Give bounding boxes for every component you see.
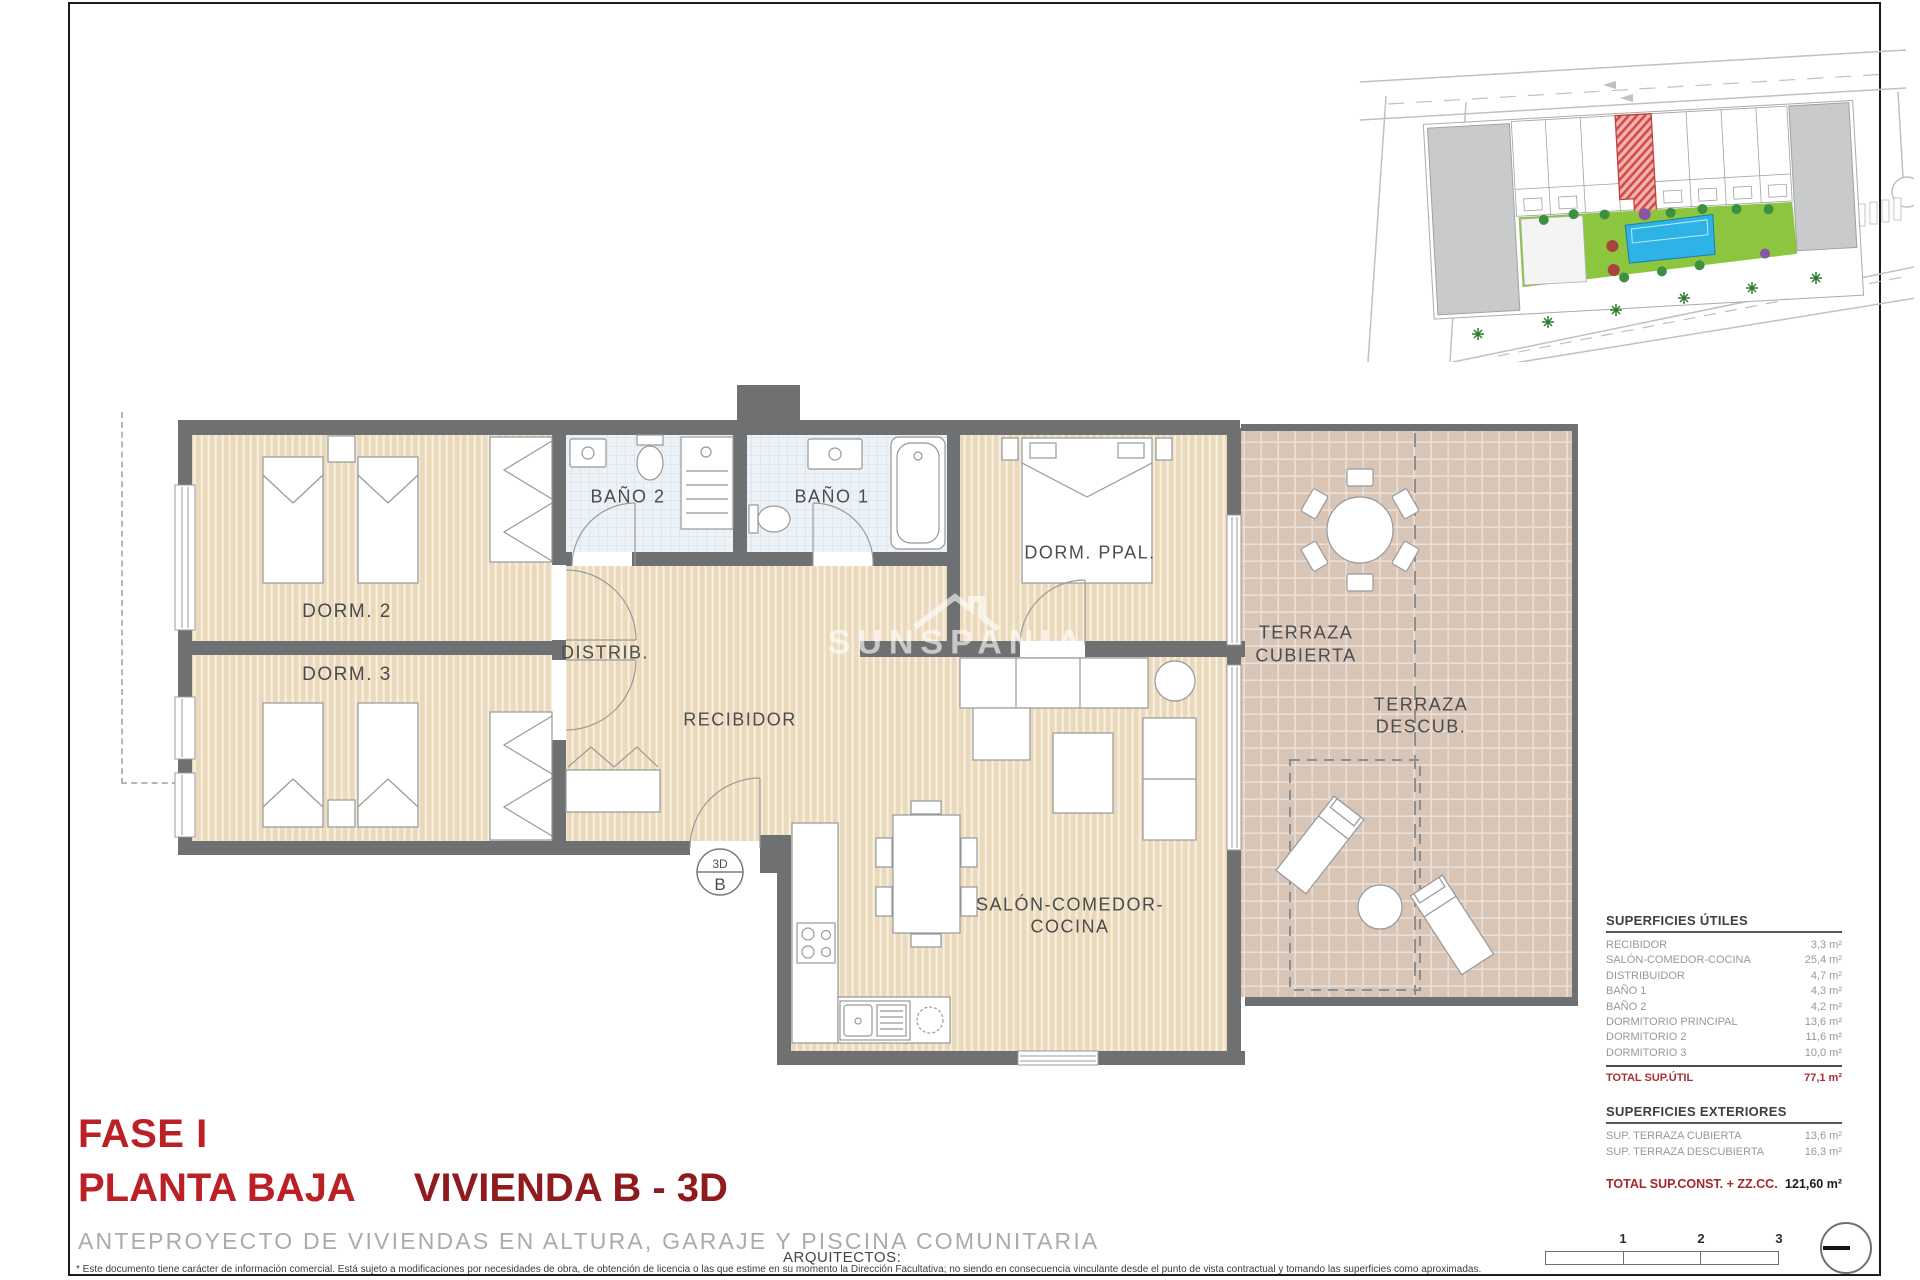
title-line-2: PLANTA BAJA VIVIENDA B - 3D [78,1166,728,1211]
section-marker-top: 3D [712,857,727,871]
plot-boundary-dashed-v [121,412,123,784]
site-arrows [1603,81,1633,102]
room-label-bano1: BAÑO 1 [794,487,869,508]
disclaimer-text: * Este documento tiene carácter de infor… [76,1264,1536,1275]
table-row: DORMITORIO 211,6 m² [1606,1030,1842,1045]
dorm2-wardrobe [490,437,552,562]
site-plan [1358,32,1914,362]
room-label-bano2: BAÑO 2 [590,487,665,508]
site-plaza [1521,216,1587,285]
project-subtitle: ANTEPROYECTO DE VIVIENDAS EN ALTURA, GAR… [78,1228,1099,1255]
scale-bar [1545,1251,1779,1265]
dorm3-wardrobe [490,712,552,840]
watermark: SUNSPANIA [828,624,1089,663]
areas-exteriores-heading: SUPERFICIES EXTERIORES [1606,1104,1842,1124]
site-crosswalk-right [1858,198,1901,226]
table-row: DORMITORIO 310,0 m² [1606,1046,1842,1061]
room-label-recibidor: RECIBIDOR [683,710,797,731]
room-label-distrib: DISTRIB. [561,643,649,664]
section-marker-bottom: B [714,875,725,895]
scale-tick-3: 3 [1775,1231,1782,1246]
room-label-salon-2: COCINA [1030,917,1109,938]
areas-utiles-heading: SUPERFICIES ÚTILES [1606,913,1842,933]
drawing-sheet: DORM. 2 DORM. 3 BAÑO 2 BAÑO 1 DORM. PPAL… [0,0,1920,1280]
room-label-dorm-ppal: DORM. PPAL. [1024,543,1155,564]
orientation-symbol [1820,1222,1872,1274]
room-label-terraza-cubierta-1: TERRAZA [1259,623,1354,644]
orientation-dash-icon [1823,1246,1850,1250]
room-label-terraza-cubierta-2: CUBIERTA [1255,646,1356,667]
table-row: BAÑO 14,3 m² [1606,984,1842,999]
floor-title: PLANTA BAJA [78,1166,356,1211]
table-row: BAÑO 24,2 m² [1606,1000,1842,1015]
room-label-terraza-descub-1: TERRAZA [1374,695,1469,716]
unit-title: VIVIENDA B - 3D [414,1166,728,1211]
table-row: DORMITORIO PRINCIPAL13,6 m² [1606,1015,1842,1030]
total-const-row: TOTAL SUP.CONST. + ZZ.CC.121,60 m² [1606,1176,1842,1192]
scale-bar-segment [1701,1252,1778,1264]
table-row: SALÓN-COMEDOR-COCINA25,4 m² [1606,953,1842,968]
site-block [1423,100,1863,319]
scale-tick-2: 2 [1697,1231,1704,1246]
table-row: SUP. TERRAZA CUBIERTA13,6 m² [1606,1129,1842,1144]
floor-plan: DORM. 2 DORM. 3 BAÑO 2 BAÑO 1 DORM. PPAL… [140,375,1600,1085]
scale-bar-segment [1546,1252,1624,1264]
total-util-row: TOTAL SUP.ÚTIL77,1 m² [1606,1065,1842,1086]
site-building-right [1789,103,1857,251]
site-building-left [1428,124,1520,315]
areas-table: SUPERFICIES ÚTILES RECIBIDOR3,3 m² SALÓN… [1606,913,1842,1192]
room-label-dorm2: DORM. 2 [302,601,392,623]
scale-tick-1: 1 [1619,1231,1626,1246]
scale-bar-segment [1624,1252,1702,1264]
phase-title: FASE I [78,1112,208,1157]
room-label-salon-1: SALÓN-COMEDOR- [976,895,1164,916]
room-label-dorm3: DORM. 3 [302,664,392,686]
table-row: DISTRIBUIDOR4,7 m² [1606,969,1842,984]
room-label-terraza-descub-2: DESCUB. [1376,717,1467,738]
table-row: RECIBIDOR3,3 m² [1606,938,1842,953]
table-row: SUP. TERRAZA DESCUBIERTA16,3 m² [1606,1145,1842,1160]
